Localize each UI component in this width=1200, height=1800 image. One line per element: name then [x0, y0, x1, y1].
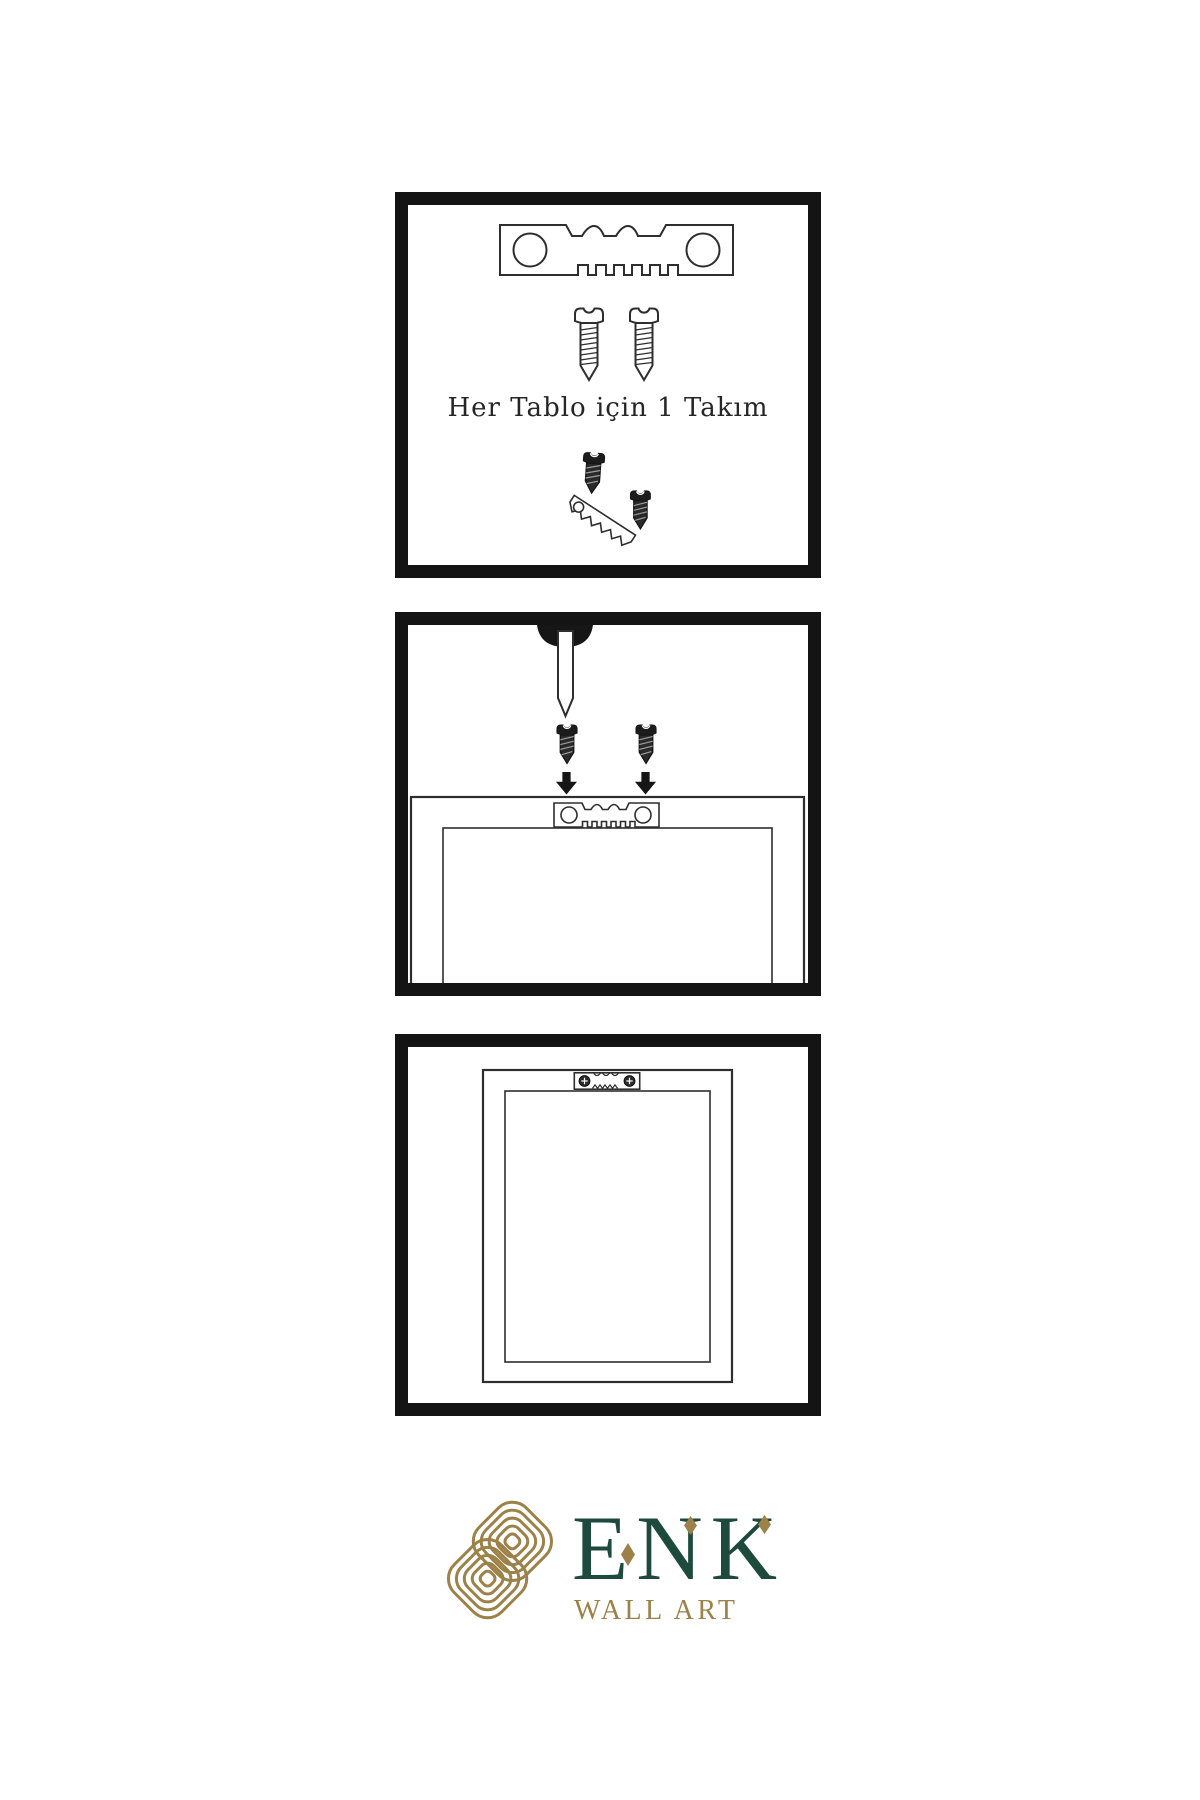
step-panel-install-hanger	[395, 612, 821, 996]
screw-icon	[557, 725, 577, 763]
screw-icon	[630, 309, 658, 381]
kit-caption: Her Tablo için 1 Takım	[408, 393, 808, 423]
install-hanger-graphic	[408, 625, 808, 983]
mounted-frame-graphic	[408, 1047, 808, 1403]
brand-name: ENK	[572, 1502, 785, 1594]
down-arrow-icon	[635, 772, 656, 795]
screw-tilted-icon	[630, 491, 650, 529]
interlaced-knot-icon	[438, 1486, 562, 1634]
sawtooth-hanger-tilted-icon	[566, 495, 636, 548]
step-panel-mounted-frame	[395, 1034, 821, 1416]
brand-logo: ENK WALL ART	[420, 1486, 800, 1650]
installed-sawtooth-hanger-icon	[574, 1073, 639, 1089]
frame-back-outline	[483, 1070, 732, 1382]
screw-icon	[575, 309, 603, 381]
wall-nail-icon	[537, 625, 593, 716]
sawtooth-hanger-icon	[500, 225, 733, 275]
brand-subtitle: WALL ART	[574, 1594, 739, 1628]
screw-icon	[636, 725, 656, 763]
down-arrow-icon	[556, 772, 577, 795]
step-panel-hardware-kit: Her Tablo için 1 Takım	[395, 192, 821, 578]
screw-tilted-icon	[581, 452, 605, 493]
hardware-kit-graphic	[408, 205, 808, 565]
